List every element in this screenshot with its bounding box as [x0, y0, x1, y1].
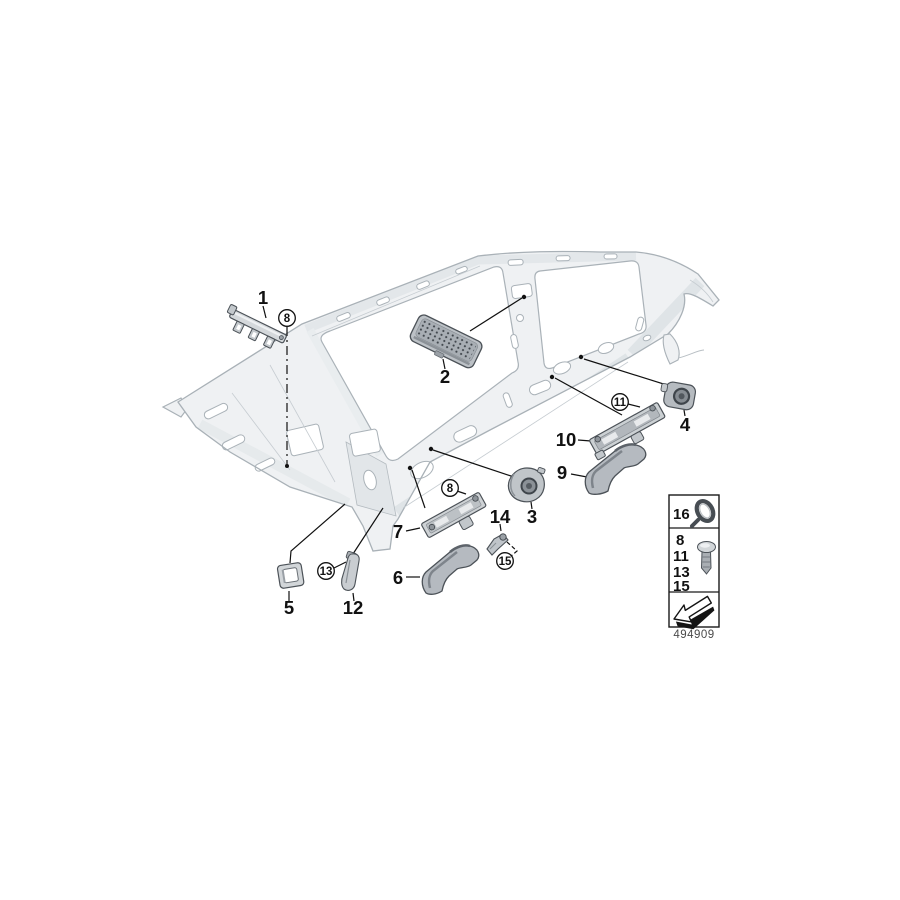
callout-14[interactable]: 14 — [490, 506, 511, 527]
roof-frame-illustration — [163, 251, 719, 551]
callout-9[interactable]: 9 — [557, 462, 567, 483]
svg-text:15: 15 — [673, 578, 690, 595]
svg-text:16: 16 — [673, 506, 690, 523]
part-5-grommet — [277, 562, 304, 588]
svg-text:15: 15 — [499, 556, 512, 568]
callout-15-circled[interactable]: 15 — [497, 553, 514, 570]
part-6-grab-handle — [422, 545, 479, 594]
svg-text:8: 8 — [676, 532, 684, 549]
part-7-bracket — [421, 492, 491, 547]
part-4-tweeter — [658, 380, 696, 411]
callout-8-circled-top[interactable]: 8 — [279, 310, 296, 327]
svg-text:8: 8 — [447, 483, 454, 495]
callout-1[interactable]: 1 — [258, 287, 268, 308]
callout-10[interactable]: 10 — [556, 429, 577, 450]
svg-text:13: 13 — [320, 566, 333, 578]
callout-8-circled-mid[interactable]: 8 — [442, 480, 459, 497]
svg-text:8: 8 — [284, 313, 291, 325]
callout-5[interactable]: 5 — [284, 597, 294, 618]
part-14-clip — [487, 534, 508, 555]
callout-13-circled[interactable]: 13 — [318, 563, 335, 580]
callout-2[interactable]: 2 — [440, 366, 450, 387]
callout-12[interactable]: 12 — [343, 597, 364, 618]
svg-text:11: 11 — [614, 397, 627, 409]
callout-7[interactable]: 7 — [393, 521, 403, 542]
parts-diagram-svg: 1 2 3 4 5 6 7 9 10 12 14 8 8 11 13 15 1 — [0, 0, 900, 900]
diagram-number: 494909 — [673, 629, 714, 641]
callout-6[interactable]: 6 — [393, 567, 403, 588]
part-3-speaker — [508, 467, 545, 502]
callout-3[interactable]: 3 — [527, 506, 537, 527]
callout-11-circled[interactable]: 11 — [612, 394, 629, 411]
legend-box: 16 8 11 13 15 — [669, 495, 719, 634]
parts-diagram-page: 1 2 3 4 5 6 7 9 10 12 14 8 8 11 13 15 1 — [0, 0, 900, 900]
part-9-grab-handle — [585, 444, 645, 494]
callout-4[interactable]: 4 — [680, 414, 691, 435]
svg-text:11: 11 — [673, 548, 689, 565]
part-12-trim-lever — [342, 551, 360, 590]
frame-cpillar-prong — [663, 334, 679, 364]
